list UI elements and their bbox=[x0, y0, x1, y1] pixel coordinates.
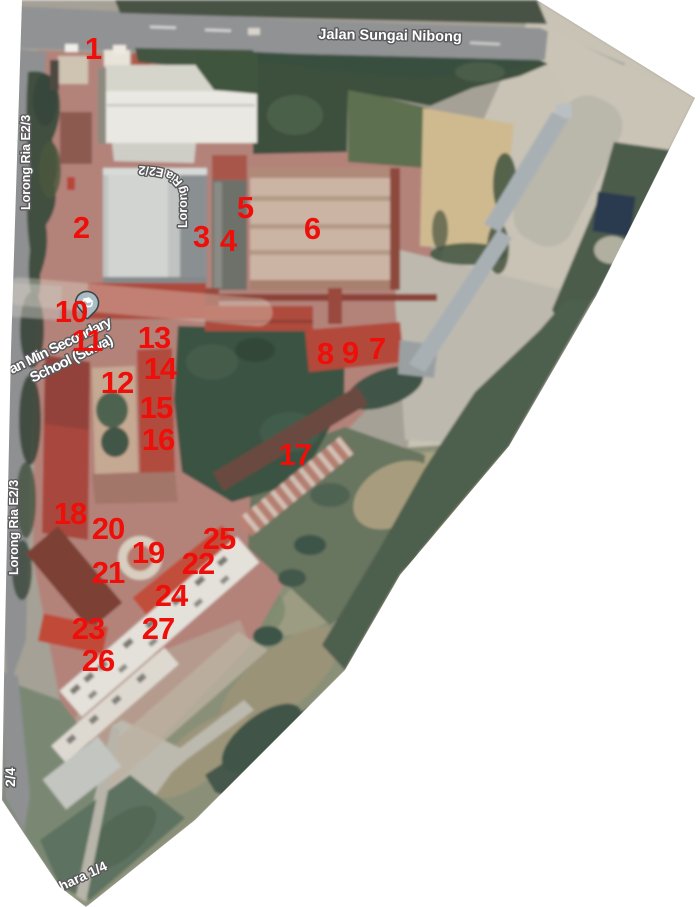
svg-text:16: 16 bbox=[142, 422, 175, 457]
svg-text:9: 9 bbox=[342, 335, 359, 370]
svg-text:26: 26 bbox=[82, 643, 115, 678]
svg-text:23: 23 bbox=[72, 611, 105, 646]
svg-text:4: 4 bbox=[220, 223, 238, 258]
svg-text:21: 21 bbox=[92, 555, 125, 590]
svg-text:3: 3 bbox=[193, 219, 210, 254]
svg-text:7: 7 bbox=[369, 331, 385, 366]
svg-text:15: 15 bbox=[140, 390, 173, 425]
svg-text:8: 8 bbox=[317, 336, 334, 371]
svg-text:14: 14 bbox=[144, 351, 178, 386]
svg-text:27: 27 bbox=[142, 611, 174, 646]
svg-text:25: 25 bbox=[203, 521, 236, 556]
svg-text:5: 5 bbox=[237, 190, 254, 225]
svg-text:Jalan Sungai Nibong: Jalan Sungai Nibong bbox=[318, 27, 462, 46]
svg-text:24: 24 bbox=[155, 578, 189, 613]
svg-text:11: 11 bbox=[72, 323, 104, 358]
svg-text:13: 13 bbox=[138, 320, 171, 355]
svg-text:6: 6 bbox=[304, 211, 321, 246]
svg-text:1: 1 bbox=[85, 31, 102, 66]
svg-text:2/4: 2/4 bbox=[2, 767, 18, 787]
svg-text:19: 19 bbox=[132, 535, 165, 570]
svg-text:18: 18 bbox=[54, 496, 87, 531]
svg-text:17: 17 bbox=[279, 437, 311, 472]
svg-text:Lorong Ria E2/3: Lorong Ria E2/3 bbox=[19, 115, 33, 210]
svg-text:20: 20 bbox=[92, 511, 124, 546]
svg-text:12: 12 bbox=[101, 365, 133, 400]
svg-text:2: 2 bbox=[73, 210, 89, 245]
svg-text:Lorong Ria E2/3: Lorong Ria E2/3 bbox=[7, 480, 21, 575]
